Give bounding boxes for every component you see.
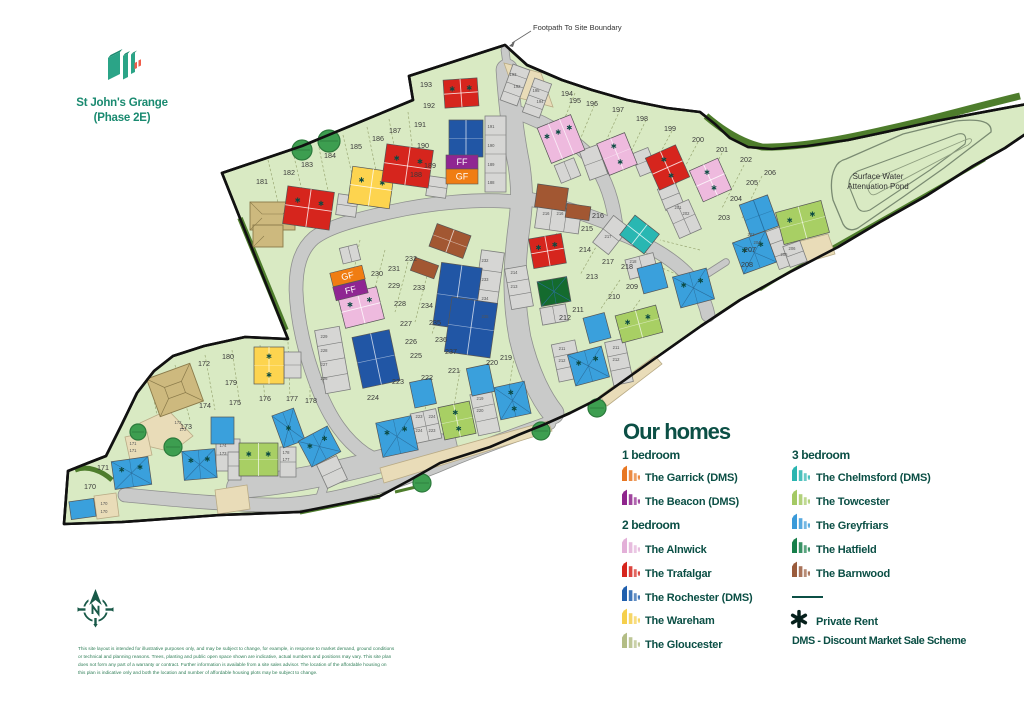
svg-text:233: 233 bbox=[413, 283, 425, 292]
svg-text:170: 170 bbox=[101, 509, 109, 514]
svg-text:214: 214 bbox=[511, 270, 519, 275]
svg-text:Attenuation Pond: Attenuation Pond bbox=[847, 182, 908, 191]
svg-text:3 bedroom: 3 bedroom bbox=[792, 448, 850, 462]
svg-text:219: 219 bbox=[500, 353, 512, 362]
svg-text:213: 213 bbox=[586, 272, 598, 281]
svg-text:204: 204 bbox=[730, 194, 742, 203]
svg-text:193: 193 bbox=[420, 80, 432, 89]
svg-text:203: 203 bbox=[748, 232, 756, 237]
svg-text:214: 214 bbox=[579, 245, 591, 254]
svg-text:172: 172 bbox=[175, 420, 183, 425]
svg-text:221: 221 bbox=[448, 366, 460, 375]
svg-text:FF: FF bbox=[457, 157, 468, 167]
svg-text:226: 226 bbox=[321, 376, 329, 381]
svg-text:227: 227 bbox=[321, 362, 329, 367]
svg-text:197: 197 bbox=[612, 105, 624, 114]
svg-text:Private Rent: Private Rent bbox=[816, 616, 878, 628]
svg-text:177: 177 bbox=[286, 394, 298, 403]
svg-text:192: 192 bbox=[423, 101, 435, 110]
svg-text:189: 189 bbox=[424, 161, 436, 170]
svg-text:201: 201 bbox=[716, 145, 728, 154]
svg-text:199: 199 bbox=[664, 124, 676, 133]
svg-text:223: 223 bbox=[392, 377, 404, 386]
svg-text:178: 178 bbox=[283, 450, 291, 455]
svg-text:176: 176 bbox=[259, 394, 271, 403]
svg-text:The Greyfriars: The Greyfriars bbox=[816, 520, 888, 532]
svg-text:171: 171 bbox=[130, 448, 138, 453]
svg-text:The Towcester: The Towcester bbox=[816, 496, 891, 508]
svg-text:or technical and planning reas: or technical and planning reasons. Trees… bbox=[78, 654, 392, 660]
svg-text:224: 224 bbox=[416, 428, 424, 433]
svg-text:188: 188 bbox=[410, 170, 422, 179]
svg-text:193: 193 bbox=[510, 72, 518, 77]
svg-text:198: 198 bbox=[636, 114, 648, 123]
svg-text:211: 211 bbox=[613, 345, 620, 350]
svg-text:185: 185 bbox=[350, 142, 362, 151]
svg-text:229: 229 bbox=[388, 281, 400, 290]
svg-text:189: 189 bbox=[488, 162, 496, 167]
svg-text:220: 220 bbox=[477, 408, 485, 413]
svg-text:191: 191 bbox=[414, 120, 426, 129]
svg-text:219: 219 bbox=[477, 396, 485, 401]
svg-text:226: 226 bbox=[405, 337, 417, 346]
svg-text:223: 223 bbox=[429, 428, 437, 433]
svg-text:224: 224 bbox=[367, 393, 379, 402]
svg-text:207: 207 bbox=[744, 245, 756, 254]
svg-text:The Hatfield: The Hatfield bbox=[816, 544, 877, 556]
svg-text:230: 230 bbox=[371, 269, 383, 278]
svg-text:224: 224 bbox=[429, 414, 437, 419]
svg-text:232: 232 bbox=[482, 258, 490, 263]
svg-text:Surface Water: Surface Water bbox=[853, 172, 904, 181]
svg-text:The Trafalgar: The Trafalgar bbox=[645, 568, 712, 580]
svg-text:194: 194 bbox=[537, 99, 545, 104]
svg-text:209: 209 bbox=[626, 282, 638, 291]
svg-text:196: 196 bbox=[586, 99, 598, 108]
svg-text:182: 182 bbox=[283, 168, 295, 177]
svg-text:220: 220 bbox=[486, 358, 498, 367]
svg-text:201: 201 bbox=[675, 205, 683, 210]
svg-text:2 bedroom: 2 bedroom bbox=[622, 518, 680, 532]
svg-text:235: 235 bbox=[482, 314, 490, 319]
svg-text:190: 190 bbox=[488, 143, 496, 148]
svg-text:190: 190 bbox=[417, 141, 429, 150]
svg-text:The Wareham: The Wareham bbox=[645, 615, 715, 627]
svg-text:195: 195 bbox=[569, 96, 581, 105]
svg-text:192: 192 bbox=[514, 84, 522, 89]
svg-text:237: 237 bbox=[445, 347, 457, 356]
svg-text:171: 171 bbox=[97, 463, 109, 472]
svg-text:171: 171 bbox=[130, 441, 138, 446]
svg-text:211: 211 bbox=[572, 305, 583, 314]
svg-text:186: 186 bbox=[372, 134, 384, 143]
svg-text:184: 184 bbox=[324, 151, 336, 160]
svg-text:212: 212 bbox=[559, 358, 567, 363]
svg-text:191: 191 bbox=[488, 124, 496, 129]
svg-text:229: 229 bbox=[321, 334, 329, 339]
svg-text:187: 187 bbox=[389, 126, 401, 135]
svg-text:174: 174 bbox=[199, 401, 211, 410]
svg-text:211: 211 bbox=[559, 346, 566, 351]
svg-text:212: 212 bbox=[613, 357, 621, 362]
svg-text:234: 234 bbox=[482, 296, 490, 301]
svg-text:218: 218 bbox=[630, 259, 638, 264]
svg-text:217: 217 bbox=[605, 234, 613, 239]
svg-text:173: 173 bbox=[220, 451, 228, 456]
svg-text:St John's Grange: St John's Grange bbox=[76, 97, 168, 109]
svg-text:The Beacon (DMS): The Beacon (DMS) bbox=[645, 496, 740, 508]
svg-text:205: 205 bbox=[781, 252, 789, 257]
svg-text:170: 170 bbox=[84, 482, 96, 491]
svg-text:228: 228 bbox=[321, 348, 329, 353]
svg-text:180: 180 bbox=[222, 352, 234, 361]
svg-text:175: 175 bbox=[229, 398, 241, 407]
svg-text:The Gloucester: The Gloucester bbox=[645, 639, 723, 651]
svg-text:183: 183 bbox=[301, 160, 313, 169]
svg-text:Footpath To Site Boundary: Footpath To Site Boundary bbox=[533, 23, 622, 32]
svg-text:Our homes: Our homes bbox=[623, 419, 731, 444]
svg-text:This site layout is intended f: This site layout is intended for illustr… bbox=[78, 646, 395, 652]
svg-text:215: 215 bbox=[581, 224, 593, 233]
svg-text:177: 177 bbox=[283, 457, 291, 462]
svg-text:231: 231 bbox=[388, 264, 400, 273]
svg-text:228: 228 bbox=[394, 299, 406, 308]
svg-text:172: 172 bbox=[198, 359, 210, 368]
svg-text:DMS - Discount Market Sale Sch: DMS - Discount Market Sale Scheme bbox=[792, 635, 966, 647]
svg-text:179: 179 bbox=[225, 378, 237, 387]
svg-text:178: 178 bbox=[305, 396, 317, 405]
svg-text:The Rochester (DMS): The Rochester (DMS) bbox=[645, 592, 753, 604]
svg-text:The Alnwick: The Alnwick bbox=[645, 544, 708, 556]
svg-text:223: 223 bbox=[416, 414, 424, 419]
svg-text:216: 216 bbox=[557, 211, 565, 216]
svg-text:206: 206 bbox=[789, 246, 797, 251]
svg-text:202: 202 bbox=[740, 155, 752, 164]
svg-text:213: 213 bbox=[511, 284, 519, 289]
svg-text:232: 232 bbox=[405, 254, 417, 263]
svg-text:216: 216 bbox=[543, 211, 551, 216]
svg-text:204: 204 bbox=[754, 240, 762, 245]
svg-text:188: 188 bbox=[488, 180, 496, 185]
svg-text:200: 200 bbox=[692, 135, 704, 144]
svg-text:195: 195 bbox=[533, 88, 541, 93]
svg-text:170: 170 bbox=[101, 501, 109, 506]
svg-text:203: 203 bbox=[718, 213, 730, 222]
svg-text:217: 217 bbox=[602, 257, 614, 266]
svg-text:GF: GF bbox=[456, 172, 469, 182]
svg-text:208: 208 bbox=[741, 260, 753, 269]
svg-text:212: 212 bbox=[559, 313, 571, 322]
svg-text:234: 234 bbox=[421, 301, 433, 310]
svg-text:235: 235 bbox=[429, 318, 441, 327]
svg-text:The Garrick (DMS): The Garrick (DMS) bbox=[645, 472, 738, 484]
svg-text:(Phase 2E): (Phase 2E) bbox=[94, 112, 151, 124]
svg-text:this plan is indicative only a: this plan is indicative only and both th… bbox=[78, 670, 317, 676]
svg-text:174: 174 bbox=[220, 443, 228, 448]
svg-text:233: 233 bbox=[482, 277, 490, 282]
svg-text:181: 181 bbox=[256, 177, 268, 186]
svg-text:The Chelmsford (DMS): The Chelmsford (DMS) bbox=[816, 472, 931, 484]
svg-text:202: 202 bbox=[683, 211, 691, 216]
svg-text:206: 206 bbox=[764, 168, 776, 177]
svg-text:225: 225 bbox=[410, 351, 422, 360]
svg-text:205: 205 bbox=[746, 178, 758, 187]
svg-text:does not form any part of a wa: does not form any part of a warranty or … bbox=[78, 662, 387, 668]
svg-text:1 bedroom: 1 bedroom bbox=[622, 448, 680, 462]
svg-text:216: 216 bbox=[592, 211, 604, 220]
svg-text:222: 222 bbox=[421, 373, 433, 382]
svg-text:227: 227 bbox=[400, 319, 412, 328]
svg-text:236: 236 bbox=[435, 335, 447, 344]
svg-text:210: 210 bbox=[608, 292, 620, 301]
svg-text:The Barnwood: The Barnwood bbox=[816, 568, 890, 580]
svg-text:172: 172 bbox=[180, 427, 188, 432]
